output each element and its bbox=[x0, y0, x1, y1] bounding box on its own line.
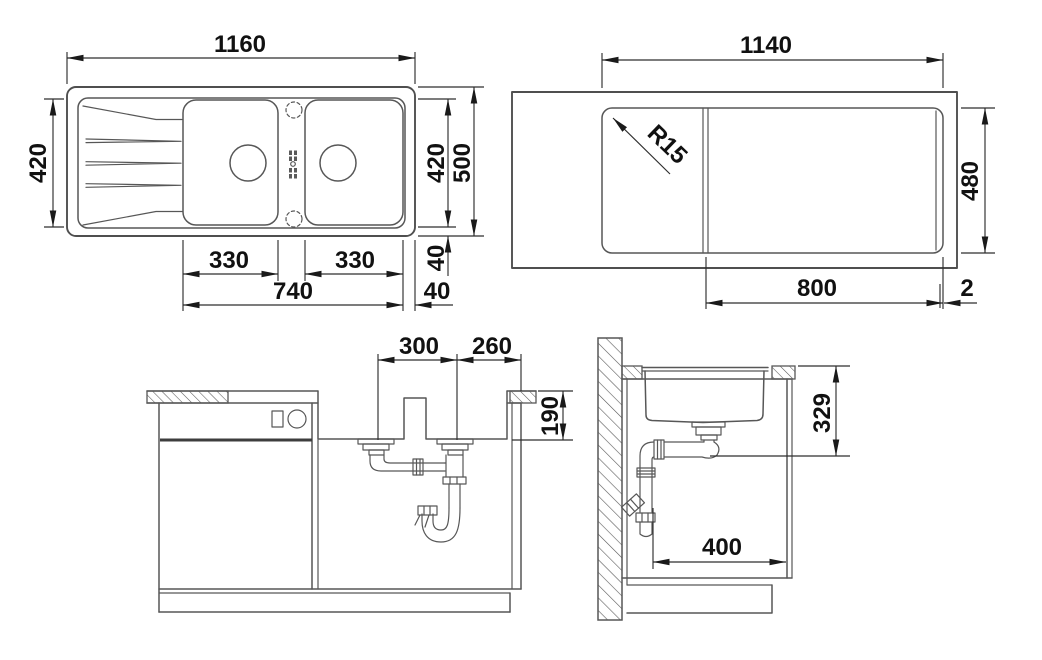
dim-label-260: 260 bbox=[472, 333, 512, 360]
cutout-divider bbox=[703, 108, 708, 253]
dishwasher-control-window bbox=[272, 411, 283, 427]
plan-view: 1160 420 420 500 40 bbox=[25, 31, 484, 311]
tap-hole-top bbox=[286, 102, 302, 118]
cabinet-side bbox=[622, 379, 792, 613]
cutout-view: R15 1140 480 800 2 bbox=[512, 32, 995, 309]
dim-label-420-right: 420 bbox=[423, 143, 450, 183]
dimension-cutout-width: 1140 bbox=[602, 32, 943, 88]
drainboard-grooves bbox=[83, 106, 182, 225]
front-view: 300 260 190 bbox=[147, 333, 573, 612]
dim-label-40-horizontal: 40 bbox=[424, 278, 451, 305]
dimension-cutout-depth: 480 bbox=[957, 108, 995, 253]
dim-label-2: 2 bbox=[960, 275, 973, 302]
tap-hole-bottom bbox=[286, 211, 302, 227]
dim-label-40-vertical: 40 bbox=[423, 245, 450, 272]
dim-label-740: 740 bbox=[273, 278, 313, 305]
bowl-left bbox=[183, 100, 278, 225]
dim-label-1160: 1160 bbox=[214, 31, 266, 58]
dimension-bowls: 330 330 740 40 bbox=[183, 240, 453, 311]
dim-label-300: 300 bbox=[399, 333, 439, 360]
dishwasher-control-dial bbox=[288, 410, 306, 428]
radius-callout: R15 bbox=[613, 118, 692, 174]
side-view: 329 400 bbox=[598, 338, 850, 620]
dim-label-420-left: 420 bbox=[25, 143, 52, 183]
waste-plumbing-side bbox=[622, 422, 725, 537]
dim-label-r15: R15 bbox=[642, 120, 692, 170]
dim-label-1140: 1140 bbox=[740, 32, 792, 59]
dim-label-190: 190 bbox=[537, 396, 564, 436]
dimension-clearance: 400 bbox=[653, 508, 786, 569]
dim-label-330-right: 330 bbox=[335, 247, 375, 274]
bowls-section bbox=[318, 386, 507, 439]
dimension-depth-right: 420 500 40 bbox=[418, 87, 484, 276]
dim-label-329: 329 bbox=[809, 393, 836, 433]
dim-label-800: 800 bbox=[797, 275, 837, 302]
dim-label-400: 400 bbox=[702, 534, 742, 561]
worktop-hatch-right bbox=[510, 391, 536, 403]
worktop-outline bbox=[512, 92, 957, 268]
bowl-right bbox=[305, 100, 403, 225]
overflow-mark bbox=[289, 151, 297, 179]
technical-drawing-sheet: 1160 420 420 500 40 bbox=[0, 0, 1042, 660]
dimension-depth-left-420: 420 bbox=[25, 99, 64, 227]
wall-section bbox=[598, 338, 622, 620]
dimension-width-1160: 1160 bbox=[67, 31, 415, 84]
dim-label-330-left: 330 bbox=[209, 247, 249, 274]
bowl-section-side bbox=[642, 368, 768, 423]
worktop-hatch-left bbox=[147, 391, 228, 403]
waste-plumbing-front bbox=[358, 439, 473, 542]
dim-label-480: 480 bbox=[957, 161, 984, 201]
dim-label-500: 500 bbox=[449, 143, 476, 183]
dimension-800-and-2: 800 2 bbox=[706, 257, 977, 309]
